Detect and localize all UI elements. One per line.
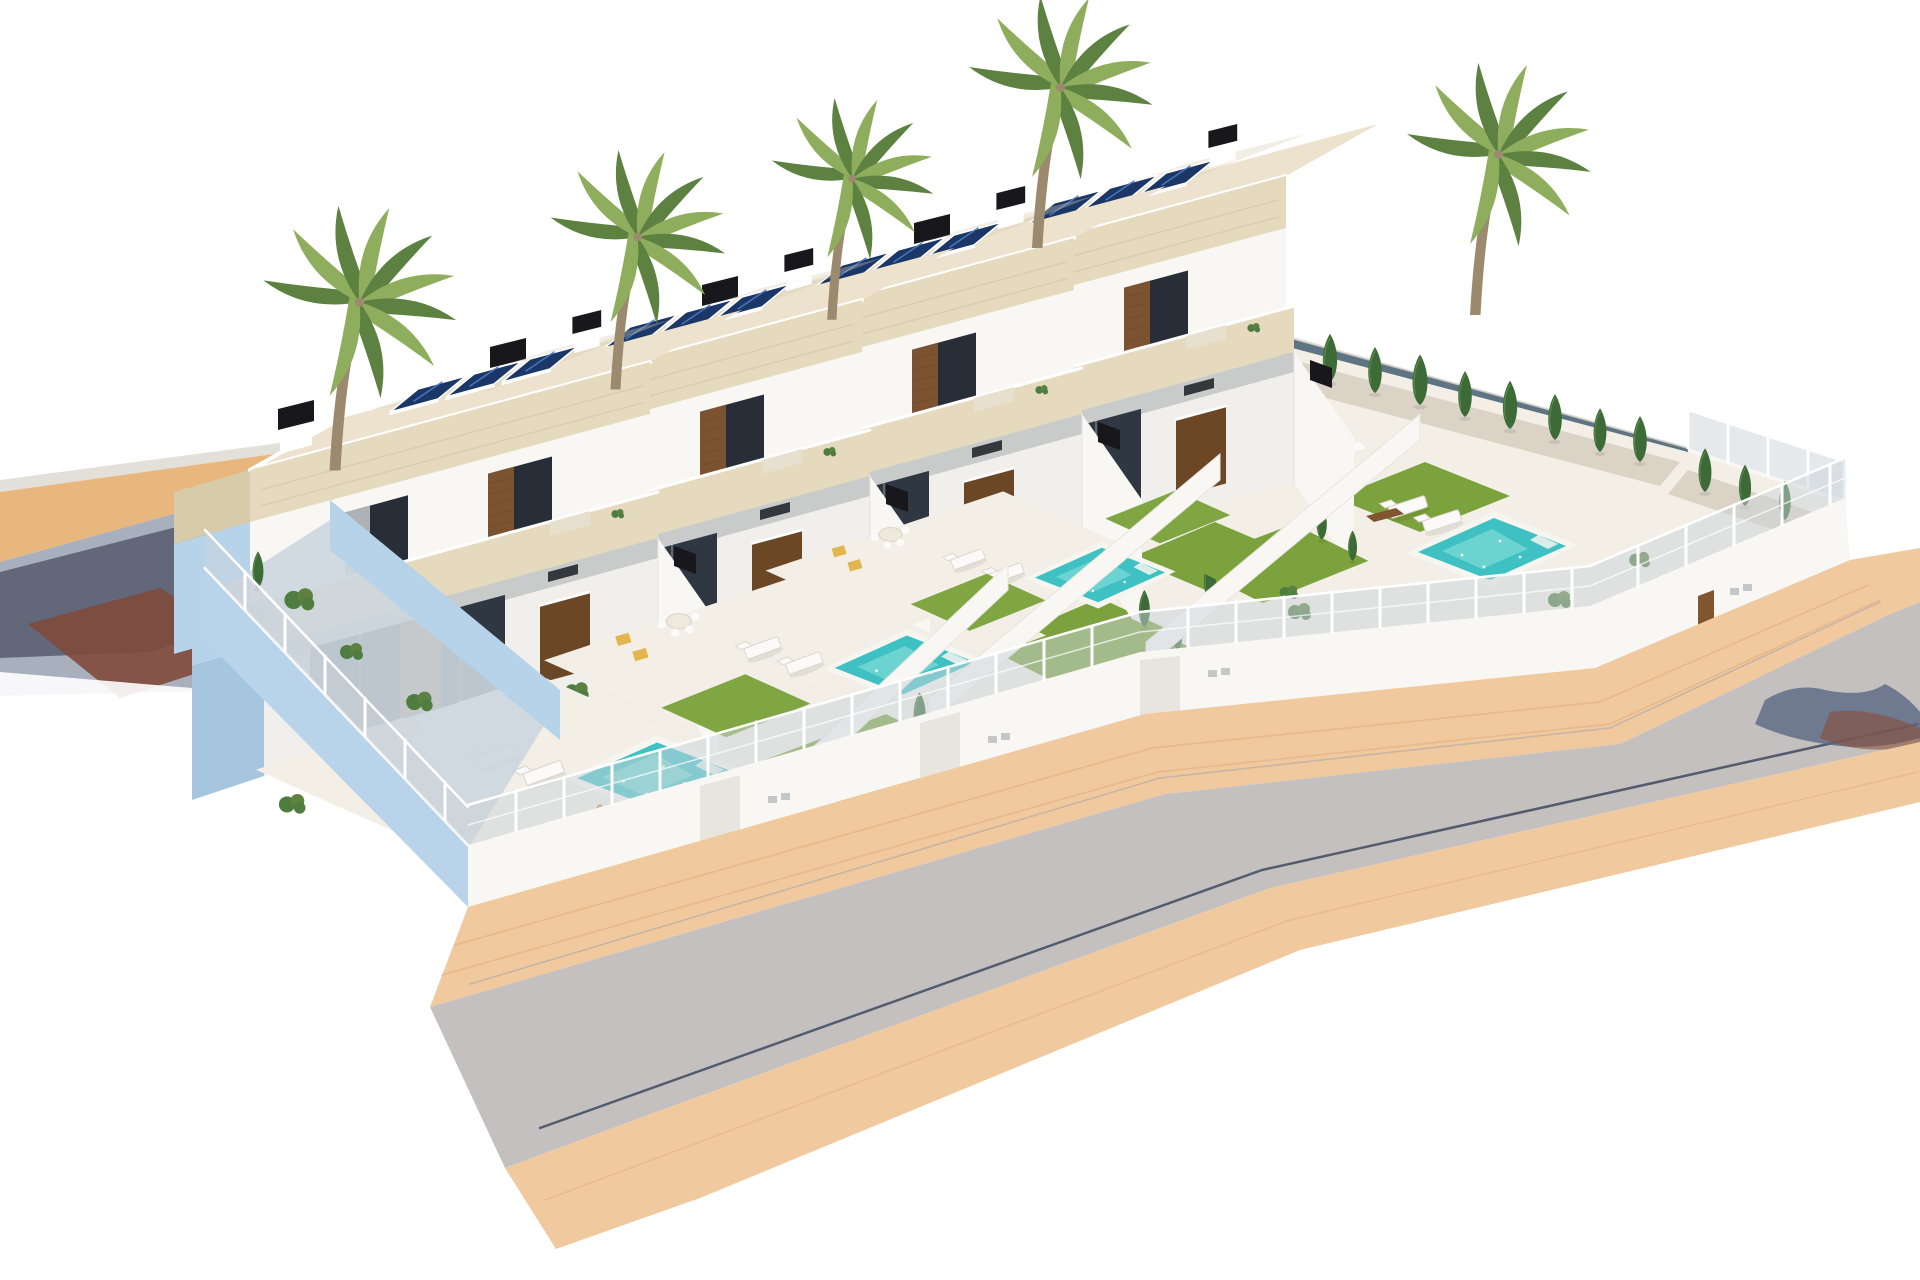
render-canvas [0,0,1920,1280]
scene-render [0,0,1920,1280]
